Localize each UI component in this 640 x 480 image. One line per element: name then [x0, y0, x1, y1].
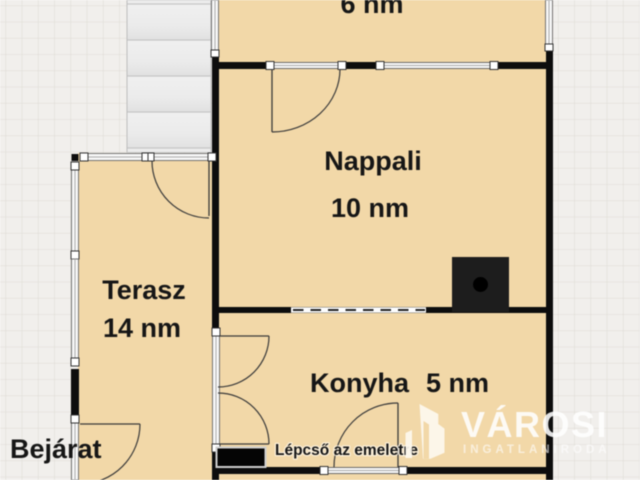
- svg-text:VÁROSI: VÁROSI: [461, 404, 608, 445]
- svg-text:Lépcső az emeletre: Lépcső az emeletre: [275, 442, 418, 459]
- svg-text:14 nm: 14 nm: [103, 313, 181, 343]
- svg-text:5 nm: 5 nm: [426, 368, 489, 398]
- svg-text:Konyha: Konyha: [310, 368, 410, 398]
- svg-text:6 nm: 6 nm: [340, 0, 403, 19]
- svg-text:Bejárat: Bejárat: [10, 434, 102, 464]
- svg-text:Terasz: Terasz: [102, 275, 186, 305]
- svg-text:10 nm: 10 nm: [331, 193, 409, 223]
- svg-text:INGATLANIRODA: INGATLANIRODA: [463, 444, 611, 456]
- svg-text:Nappali: Nappali: [324, 146, 422, 176]
